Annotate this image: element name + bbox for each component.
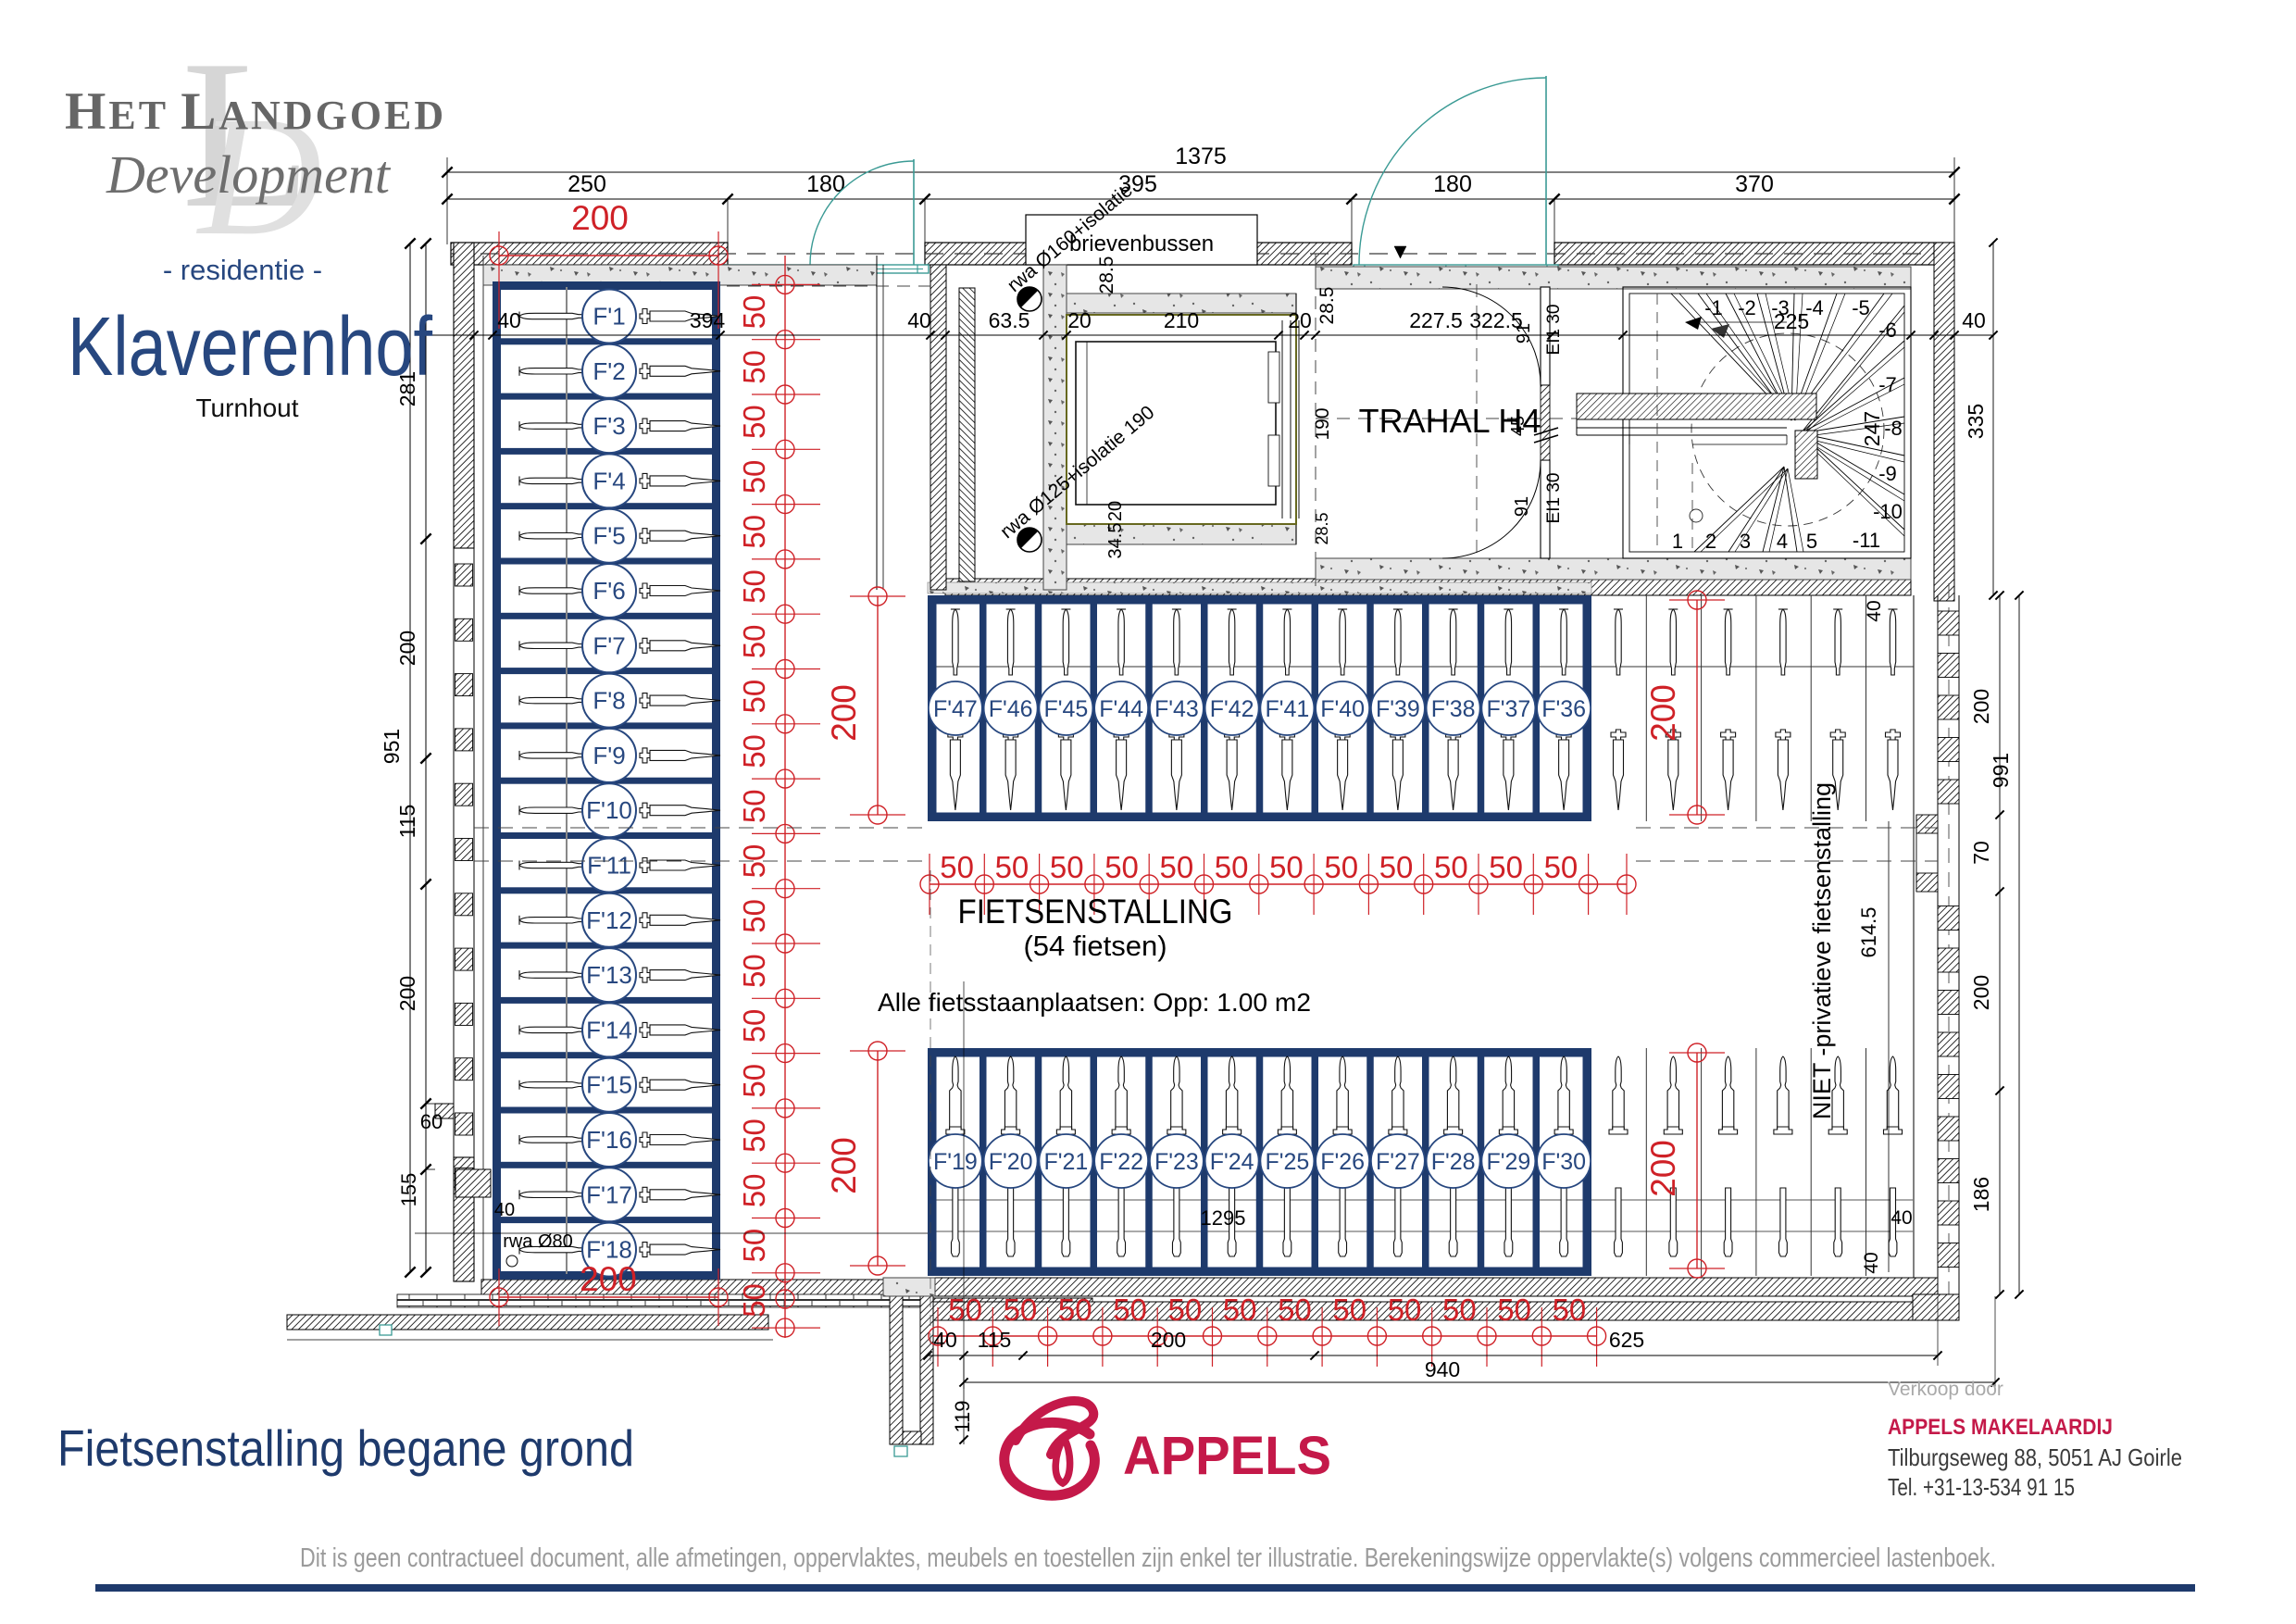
- svg-text:50: 50: [995, 850, 1029, 884]
- svg-text:200: 200: [1644, 1140, 1682, 1197]
- svg-text:F'15: F'15: [586, 1071, 632, 1099]
- svg-text:155: 155: [397, 1173, 420, 1207]
- svg-text:50: 50: [1269, 850, 1304, 884]
- svg-text:F'8: F'8: [593, 687, 625, 715]
- svg-text:1375: 1375: [1175, 144, 1227, 169]
- svg-text:50: 50: [1497, 1293, 1531, 1327]
- svg-text:50: 50: [1388, 1293, 1422, 1327]
- svg-text:370: 370: [1735, 171, 1774, 197]
- svg-text:50: 50: [1278, 1293, 1312, 1327]
- svg-text:50: 50: [1113, 1293, 1147, 1327]
- svg-text:200: 200: [395, 631, 419, 666]
- svg-text:F'40: F'40: [1320, 696, 1365, 722]
- svg-text:Development: Development: [106, 144, 392, 205]
- svg-text:50: 50: [737, 350, 771, 384]
- svg-text:50: 50: [737, 515, 771, 549]
- svg-text:200: 200: [395, 976, 419, 1011]
- svg-text:50: 50: [737, 1009, 771, 1043]
- svg-text:28.5: 28.5: [1096, 256, 1117, 294]
- svg-text:200: 200: [1644, 684, 1682, 742]
- svg-text:200: 200: [825, 1137, 863, 1194]
- svg-text:50: 50: [940, 850, 974, 884]
- svg-text:50: 50: [1058, 1293, 1092, 1327]
- svg-text:50: 50: [737, 899, 771, 933]
- svg-text:F'46: F'46: [989, 696, 1033, 722]
- svg-text:APPELS: APPELS: [1123, 1426, 1331, 1486]
- svg-text:F'38: F'38: [1431, 696, 1476, 722]
- svg-text:-8: -8: [1884, 417, 1903, 440]
- svg-text:115: 115: [978, 1328, 1012, 1352]
- svg-text:50: 50: [1215, 850, 1249, 884]
- svg-text:Klaverenhof: Klaverenhof: [68, 301, 433, 394]
- svg-text:EI1 30: EI1 30: [1544, 473, 1564, 524]
- svg-text:50: 50: [737, 680, 771, 714]
- svg-text:50: 50: [1379, 850, 1414, 884]
- svg-text:40: 40: [933, 1328, 957, 1352]
- svg-text:951: 951: [380, 729, 404, 764]
- svg-text:brievenbussen: brievenbussen: [1069, 231, 1214, 256]
- svg-text:- residentie -: - residentie -: [163, 254, 322, 286]
- svg-text:200: 200: [1151, 1328, 1186, 1352]
- svg-text:210: 210: [1164, 308, 1199, 332]
- svg-text:70: 70: [1969, 841, 1993, 865]
- svg-text:28.5: 28.5: [1316, 287, 1338, 325]
- svg-text:614.5: 614.5: [1857, 906, 1880, 957]
- svg-text:50: 50: [737, 1173, 771, 1207]
- svg-text:40: 40: [907, 308, 931, 332]
- svg-text:F'42: F'42: [1210, 696, 1254, 722]
- svg-text:5: 5: [1806, 530, 1817, 553]
- svg-text:50: 50: [737, 460, 771, 494]
- svg-text:-6: -6: [1878, 319, 1897, 342]
- svg-text:F'24: F'24: [1210, 1149, 1254, 1175]
- svg-text:991: 991: [1989, 753, 2013, 788]
- svg-text:2: 2: [1705, 530, 1716, 553]
- svg-text:180: 180: [1433, 171, 1472, 197]
- svg-text:625: 625: [1609, 1328, 1644, 1352]
- svg-text:190: 190: [1312, 407, 1333, 440]
- svg-text:50: 50: [1324, 850, 1358, 884]
- svg-text:50: 50: [737, 624, 771, 658]
- svg-text:50: 50: [737, 405, 771, 439]
- svg-text:Verkoop door: Verkoop door: [1888, 1379, 2003, 1400]
- svg-text:F'17: F'17: [586, 1181, 632, 1208]
- svg-text:45: 45: [1508, 416, 1529, 436]
- svg-text:119: 119: [951, 1400, 974, 1432]
- svg-text:F'2: F'2: [593, 357, 625, 385]
- svg-text:40: 40: [494, 1200, 515, 1220]
- svg-text:335: 335: [1964, 404, 1988, 439]
- svg-text:63.5: 63.5: [989, 308, 1030, 332]
- svg-text:rwa Ø80: rwa Ø80: [503, 1231, 573, 1252]
- svg-text:50: 50: [737, 569, 771, 604]
- svg-text:F'28: F'28: [1431, 1149, 1476, 1175]
- svg-text:50: 50: [737, 1118, 771, 1153]
- svg-text:F'10: F'10: [586, 796, 632, 824]
- svg-text:F'21: F'21: [1043, 1149, 1088, 1175]
- svg-text:-2: -2: [1738, 296, 1756, 319]
- svg-text:250: 250: [568, 171, 606, 197]
- svg-text:F'43: F'43: [1154, 696, 1199, 722]
- svg-text:F'12: F'12: [586, 906, 632, 934]
- svg-text:-5: -5: [1852, 296, 1870, 319]
- svg-text:225: 225: [1774, 309, 1809, 333]
- svg-text:Dit is geen contractueel docum: Dit is geen contractueel document, alle …: [300, 1543, 1996, 1573]
- svg-text:394: 394: [690, 308, 726, 332]
- svg-text:F'26: F'26: [1320, 1149, 1365, 1175]
- svg-text:227.5: 227.5: [1409, 308, 1463, 332]
- svg-text:50: 50: [948, 1293, 982, 1327]
- svg-text:Fietsenstalling begane grond: Fietsenstalling begane grond: [57, 1419, 634, 1477]
- svg-text:NIET -privatieve fietsenstalli: NIET -privatieve fietsenstalling: [1808, 782, 1836, 1119]
- svg-text:200: 200: [1969, 975, 1993, 1010]
- svg-text:-7: -7: [1878, 373, 1897, 396]
- svg-text:40: 40: [497, 308, 521, 332]
- svg-text:1295: 1295: [1201, 1206, 1246, 1230]
- svg-text:50: 50: [1553, 1293, 1587, 1327]
- svg-text:200: 200: [1969, 689, 1993, 724]
- svg-text:200: 200: [825, 684, 863, 742]
- svg-text:F'11: F'11: [587, 852, 631, 880]
- svg-text:50: 50: [1544, 850, 1578, 884]
- svg-text:F'1: F'1: [593, 303, 625, 331]
- svg-text:F'36: F'36: [1541, 696, 1586, 722]
- svg-text:50: 50: [1004, 1293, 1038, 1327]
- svg-text:F'19: F'19: [933, 1149, 978, 1175]
- svg-text:-11: -11: [1853, 529, 1880, 552]
- svg-text:Tilburgseweg 88, 5051 AJ Goirl: Tilburgseweg 88, 5051 AJ Goirle: [1888, 1443, 2182, 1471]
- svg-text:F'39: F'39: [1376, 696, 1420, 722]
- svg-text:50: 50: [737, 734, 771, 768]
- svg-text:F'25: F'25: [1265, 1149, 1309, 1175]
- svg-text:F'9: F'9: [593, 742, 625, 769]
- svg-text:50: 50: [1434, 850, 1468, 884]
- svg-text:50: 50: [737, 954, 771, 988]
- svg-text:Turnhout: Turnhout: [195, 394, 298, 422]
- svg-text:115: 115: [395, 805, 419, 839]
- svg-text:Tel. +31-13-534 91 15: Tel. +31-13-534 91 15: [1888, 1473, 2075, 1501]
- svg-text:40: 40: [1861, 1252, 1882, 1273]
- svg-text:F'6: F'6: [593, 577, 625, 605]
- svg-text:40: 40: [1962, 308, 1986, 332]
- svg-text:20: 20: [1067, 308, 1092, 332]
- svg-text:F'16: F'16: [586, 1126, 632, 1154]
- svg-text:F'37: F'37: [1486, 696, 1530, 722]
- svg-text:40: 40: [1890, 1207, 1912, 1229]
- svg-text:50: 50: [737, 1283, 771, 1318]
- svg-text:F'45: F'45: [1043, 696, 1088, 722]
- svg-text:-9: -9: [1878, 462, 1897, 485]
- svg-text:247: 247: [1860, 411, 1884, 446]
- svg-text:20: 20: [1288, 308, 1312, 332]
- svg-text:F'41: F'41: [1265, 696, 1309, 722]
- svg-text:F'20: F'20: [989, 1149, 1033, 1175]
- svg-text:F'23: F'23: [1154, 1149, 1199, 1175]
- svg-text:91: 91: [1512, 496, 1532, 517]
- svg-text:F'22: F'22: [1099, 1149, 1143, 1175]
- svg-text:50: 50: [1442, 1293, 1477, 1327]
- svg-text:50: 50: [1104, 850, 1139, 884]
- svg-text:50: 50: [1223, 1293, 1257, 1327]
- svg-text:F'30: F'30: [1541, 1149, 1586, 1175]
- svg-text:F'13: F'13: [586, 961, 632, 989]
- svg-text:F'47: F'47: [933, 696, 978, 722]
- svg-text:F'3: F'3: [593, 412, 625, 440]
- svg-text:(54 fietsen): (54 fietsen): [1023, 930, 1167, 962]
- svg-text:1: 1: [1672, 530, 1683, 553]
- svg-text:40: 40: [1864, 600, 1885, 621]
- svg-text:50: 50: [737, 1064, 771, 1098]
- svg-text:50: 50: [1050, 850, 1084, 884]
- svg-text:50: 50: [737, 295, 771, 330]
- svg-text:50: 50: [1332, 1293, 1366, 1327]
- svg-text:322.5: 322.5: [1469, 308, 1523, 332]
- svg-text:4: 4: [1777, 530, 1788, 553]
- svg-text:50: 50: [1167, 1293, 1202, 1327]
- svg-text:940: 940: [1425, 1357, 1460, 1381]
- svg-text:Alle fietsstaanplaatsen: Opp:: Alle fietsstaanplaatsen: Opp: 1.00 m2: [878, 988, 1311, 1017]
- svg-text:50: 50: [737, 789, 771, 823]
- svg-text:F'27: F'27: [1376, 1149, 1420, 1175]
- svg-text:F'44: F'44: [1099, 696, 1143, 722]
- svg-text:F'7: F'7: [593, 631, 625, 659]
- svg-text:EI1 30: EI1 30: [1544, 305, 1564, 356]
- svg-text:FIETSENSTALLING: FIETSENSTALLING: [958, 893, 1233, 931]
- svg-text:F'5: F'5: [593, 522, 625, 550]
- svg-text:APPELS MAKELAARDIJ: APPELS MAKELAARDIJ: [1888, 1415, 2113, 1440]
- svg-text:20: 20: [1105, 501, 1126, 521]
- svg-text:50: 50: [1159, 850, 1193, 884]
- svg-text:-10: -10: [1873, 500, 1903, 523]
- svg-text:50: 50: [1489, 850, 1523, 884]
- svg-text:3: 3: [1740, 530, 1751, 553]
- svg-text:F'4: F'4: [593, 467, 625, 494]
- svg-text:34.5: 34.5: [1105, 523, 1126, 559]
- svg-text:-1: -1: [1704, 296, 1723, 319]
- svg-text:186: 186: [1969, 1177, 1993, 1212]
- svg-text:200: 200: [580, 1260, 637, 1298]
- svg-text:F'29: F'29: [1486, 1149, 1530, 1175]
- svg-text:60: 60: [420, 1110, 443, 1133]
- svg-text:200: 200: [571, 199, 629, 237]
- svg-text:F'14: F'14: [586, 1016, 632, 1043]
